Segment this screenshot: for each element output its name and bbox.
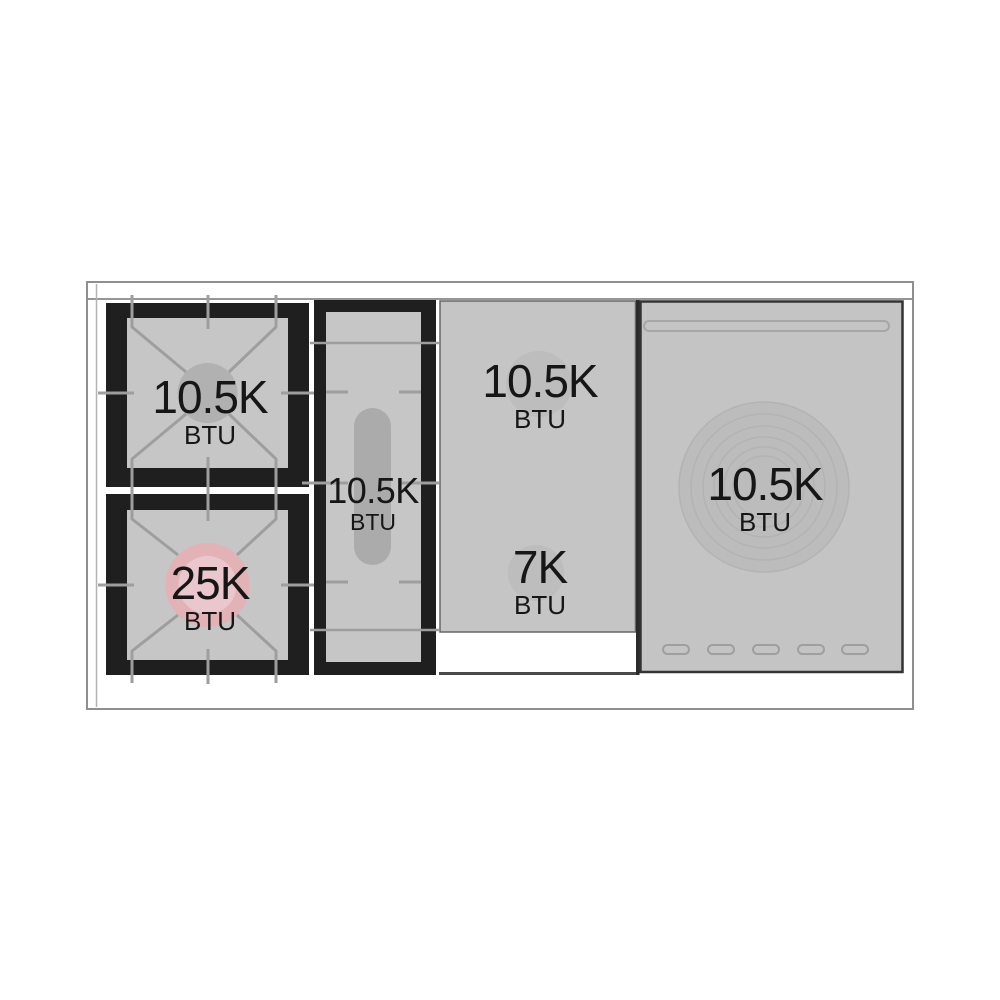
- burner-label-griddle-front: 7K BTU: [513, 544, 567, 620]
- vent-slot: [753, 645, 779, 654]
- btu-unit: BTU: [152, 421, 267, 450]
- burner-label-center-oval: 10.5K BTU: [327, 473, 419, 535]
- btu-value: 10.5K: [707, 461, 822, 508]
- btu-value: 10.5K: [152, 374, 267, 421]
- btu-value: 7K: [513, 544, 567, 591]
- btu-value: 10.5K: [327, 473, 419, 510]
- btu-unit: BTU: [482, 405, 597, 434]
- burner-label-french-top: 10.5K BTU: [707, 461, 822, 537]
- vent-slot: [842, 645, 868, 654]
- burner-label-top-left: 10.5K BTU: [152, 374, 267, 450]
- vent-slot: [798, 645, 824, 654]
- vent-slot: [708, 645, 734, 654]
- btu-unit: BTU: [327, 509, 419, 535]
- btu-unit: BTU: [707, 508, 822, 537]
- burner-label-bottom-left: 25K BTU: [171, 560, 250, 636]
- btu-unit: BTU: [513, 591, 567, 620]
- btu-value: 10.5K: [482, 358, 597, 405]
- cooktop-diagram: 10.5K BTU 25K BTU 10.5K BTU 10.5K BTU 7K…: [86, 281, 914, 710]
- btu-unit: BTU: [171, 607, 250, 636]
- btu-value: 25K: [171, 560, 250, 607]
- griddle-front-edge: [439, 672, 636, 675]
- burner-label-griddle-rear: 10.5K BTU: [482, 358, 597, 434]
- vent-slot: [663, 645, 689, 654]
- section-divider: [636, 300, 640, 675]
